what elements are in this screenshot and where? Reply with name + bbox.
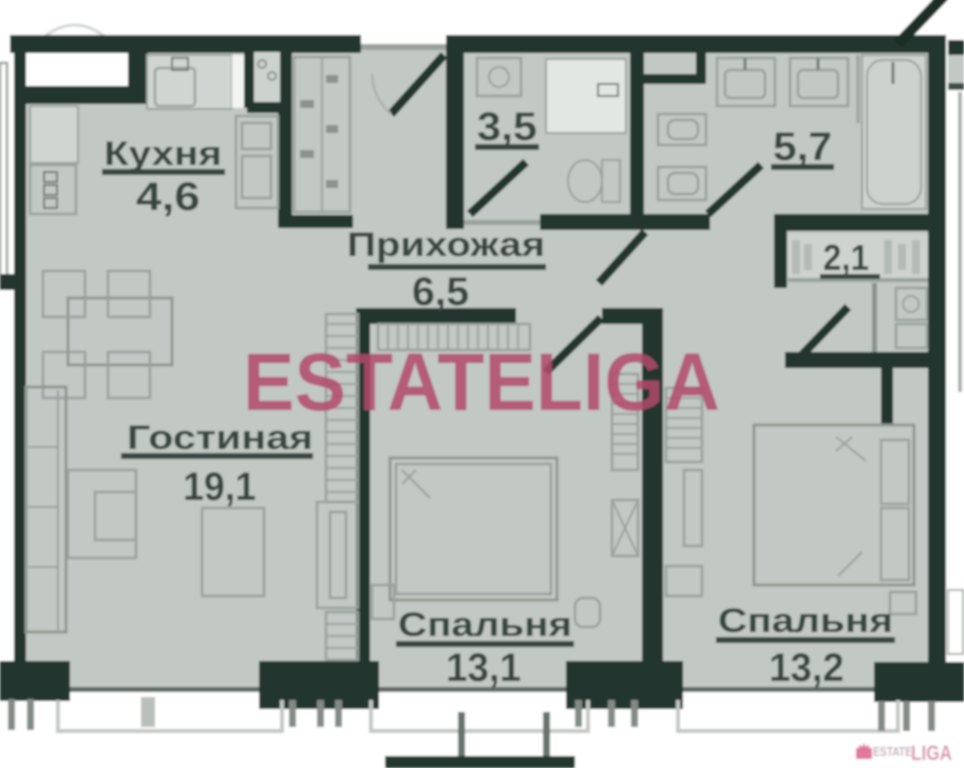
svg-text:LIGA: LIGA xyxy=(911,742,952,765)
svg-text:Кухня: Кухня xyxy=(104,135,222,173)
svg-text:Прихожая: Прихожая xyxy=(347,226,545,264)
svg-text:3,5: 3,5 xyxy=(477,105,537,149)
svg-text:6,5: 6,5 xyxy=(412,270,469,314)
svg-text:13,2: 13,2 xyxy=(769,646,844,690)
svg-text:19,1: 19,1 xyxy=(183,465,256,509)
svg-text:Спальня: Спальня xyxy=(398,606,572,644)
svg-text:Спальня: Спальня xyxy=(718,602,893,640)
svg-text:4,6: 4,6 xyxy=(136,175,200,219)
svg-text:13,1: 13,1 xyxy=(446,646,521,690)
svg-text:2,1: 2,1 xyxy=(823,237,869,278)
svg-text:5,7: 5,7 xyxy=(773,125,832,169)
svg-text:ESTATE: ESTATE xyxy=(873,744,912,759)
svg-text:ESTATELIGA: ESTATELIGA xyxy=(243,337,720,428)
